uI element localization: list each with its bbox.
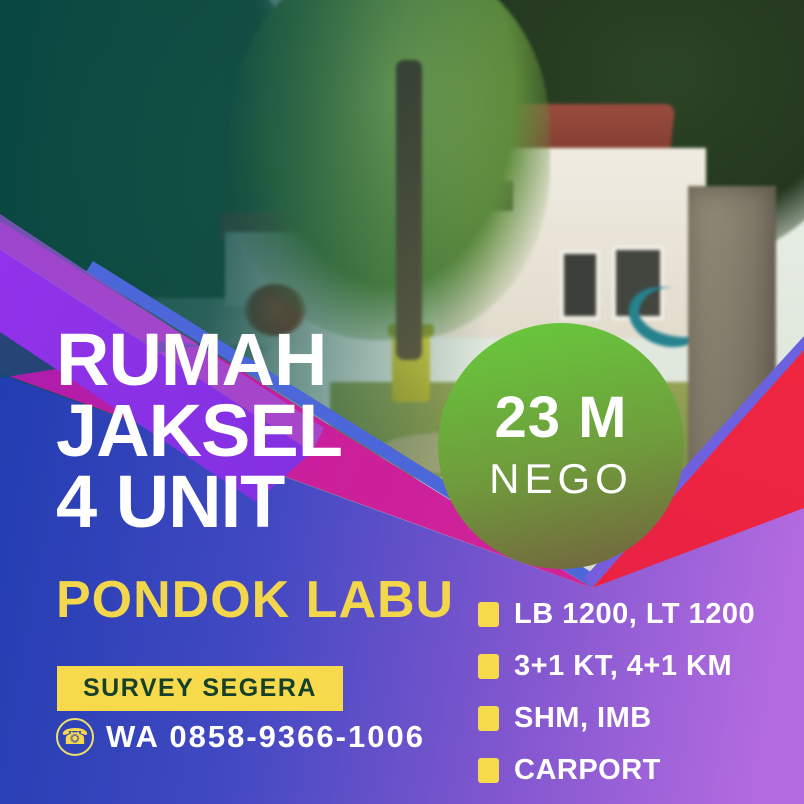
phone-glyph: ☎	[61, 725, 88, 750]
price-amount: 23 M	[495, 389, 628, 447]
list-item: 3+1 KT, 4+1 KM	[478, 640, 755, 692]
headline-line-1: RUMAH	[56, 324, 342, 395]
location-label: PONDOK LABU	[56, 570, 454, 630]
price-note: NEGO	[489, 455, 633, 503]
feature-label: SHM, IMB	[514, 702, 652, 735]
real-estate-poster: 23 M NEGO RUMAH JAKSEL 4 UNIT PONDOK LAB…	[0, 0, 804, 804]
bullet-square-icon	[478, 654, 499, 679]
feature-label: 3+1 KT, 4+1 KM	[514, 650, 732, 683]
survey-badge: SURVEY SEGERA	[57, 666, 343, 711]
list-item: SHM, IMB	[478, 692, 755, 744]
headline-line-3: 4 UNIT	[56, 466, 342, 537]
list-item: LB 1200, LT 1200	[478, 588, 755, 640]
feature-list: LB 1200, LT 1200 3+1 KT, 4+1 KM SHM, IMB…	[478, 588, 755, 796]
bullet-square-icon	[478, 602, 499, 627]
phone-icon: ☎	[56, 718, 94, 756]
bullet-square-icon	[478, 706, 499, 731]
bullet-square-icon	[478, 758, 499, 783]
feature-label: LB 1200, LT 1200	[514, 598, 755, 631]
whatsapp-contact[interactable]: ☎ WA 0858-9366-1006	[56, 718, 425, 756]
phone-number: WA 0858-9366-1006	[106, 719, 425, 755]
feature-label: CARPORT	[514, 754, 661, 787]
headline-line-2: JAKSEL	[56, 395, 342, 466]
price-badge: 23 M NEGO	[438, 323, 684, 569]
headline: RUMAH JAKSEL 4 UNIT	[56, 324, 342, 537]
list-item: CARPORT	[478, 744, 755, 796]
